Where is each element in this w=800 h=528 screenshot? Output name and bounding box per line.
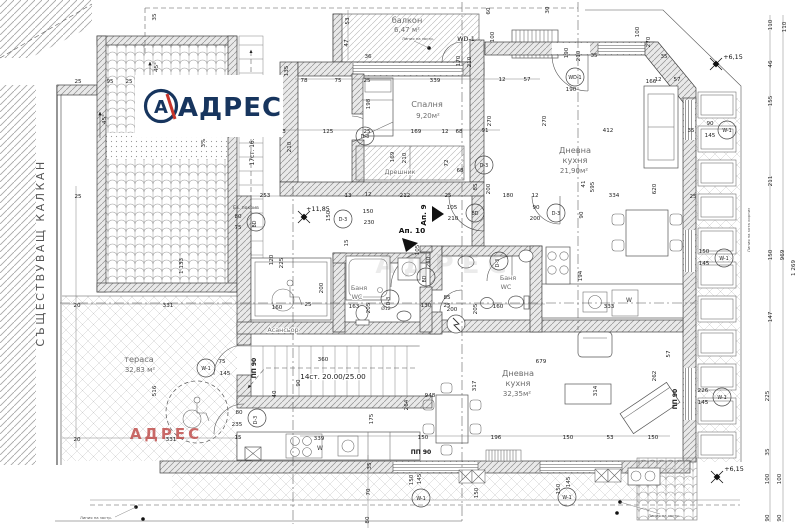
room-name: WC: [501, 283, 512, 291]
dimension-label: 150: [363, 209, 374, 215]
room-name: Дрешник: [384, 168, 415, 176]
room-name: тераса: [124, 354, 154, 364]
dimension-label: 412: [603, 128, 614, 134]
dimension-label: 190: [566, 87, 577, 93]
stairs-label: 14ст. 20.00/25.00: [300, 372, 366, 381]
roof-patch-bottom-right: [637, 458, 697, 520]
dimension-label: 15: [234, 435, 242, 441]
dimension-label: 60: [486, 7, 492, 15]
coffee-table: [565, 384, 611, 404]
tag-label: BD: [422, 275, 428, 282]
dimension-label: 53: [345, 17, 351, 25]
dimension-label: 45°: [102, 114, 108, 124]
dimension-label: 516: [152, 385, 158, 396]
dimension-label: 85: [443, 295, 451, 301]
dimension-label: 75: [234, 225, 242, 231]
dimension-label: 36: [364, 54, 372, 60]
dimension-label: 35: [152, 13, 158, 21]
door-tag-label: WD-1: [457, 35, 475, 43]
dimension-label: 47: [344, 39, 350, 47]
note-label: Линия на застр.: [402, 36, 434, 41]
dimension-label: 68: [456, 168, 464, 174]
dimension-label: 235: [232, 422, 243, 428]
dimension-label: 211: [768, 175, 774, 186]
dimension-label: 53: [606, 435, 614, 441]
dimension-label: 163: [349, 304, 360, 310]
dimension-label: 105: [415, 244, 421, 255]
tag-label: BD: [472, 211, 479, 217]
dimension-label: 270: [542, 115, 548, 126]
dimension-label: 90: [706, 121, 714, 127]
dimension-label: 12: [531, 193, 538, 199]
dimension-label: 40: [272, 390, 278, 398]
dimension-label: 169: [411, 129, 422, 135]
room-area: 21,90м²: [560, 167, 588, 175]
room-area: 6,47 м²: [394, 26, 420, 34]
room-area: 32,83 м²: [125, 366, 156, 374]
dimension-label: 210: [402, 152, 408, 163]
gray-watermark: АДРЕС: [375, 250, 514, 280]
dimension-label: 314: [593, 385, 599, 396]
room-name: балкон: [392, 15, 423, 25]
dimension-label: 15: [344, 239, 350, 247]
dimension-label: 270: [646, 36, 652, 47]
dimension-label: 264: [404, 399, 410, 410]
ac-unit: [628, 468, 660, 485]
dimension-label: 90: [765, 514, 771, 522]
dimension-label: 226: [698, 388, 709, 394]
stairs-14: [237, 346, 420, 396]
dimension-label: 333: [604, 304, 615, 310]
tag-label: D-3: [253, 416, 259, 424]
level-label: +6,15: [723, 53, 743, 61]
dimension-label: 262: [652, 371, 658, 382]
tag-label: BD: [252, 220, 258, 227]
dimension-label: 110: [768, 19, 774, 30]
dimension-label: 125: [323, 129, 334, 135]
tag-label: D-3: [495, 259, 501, 267]
dimension-label: 150: [418, 435, 429, 441]
dimension-label: 25: [125, 79, 133, 85]
dimension-label: 190: [564, 47, 570, 58]
dimension-label: 150: [409, 474, 415, 485]
dimension-label: 331: [163, 303, 174, 309]
dimension-label: 198: [366, 98, 372, 109]
fire-door-label: ПП 90: [672, 389, 679, 409]
dimension-label: 969: [780, 249, 786, 260]
armchair: [578, 332, 612, 357]
dimension-label: 110: [782, 21, 788, 32]
adres-logo: А АДРЕС: [135, 75, 283, 137]
dimension-label: 25: [443, 303, 451, 309]
dimension-label: 3: [282, 129, 286, 135]
apartment-label: Ап. 10: [399, 226, 426, 235]
dimension-label: 210: [467, 56, 473, 67]
room-name: Дневна: [502, 368, 534, 378]
dimension-label: 679: [536, 359, 547, 365]
dimension-label: 100: [777, 473, 783, 484]
dimension-label: 80: [234, 214, 242, 220]
dimension-label: 91: [481, 128, 489, 134]
dimension-label: 210: [576, 50, 582, 61]
appliance-label: W: [317, 445, 323, 452]
dimension-label: 169: [390, 151, 396, 162]
dimension-label: 105: [447, 205, 458, 211]
tag-label: W-1: [719, 256, 728, 262]
dimension-label: 68: [455, 129, 463, 135]
dimension-label: 57: [673, 77, 681, 83]
sofa-lower: [620, 382, 680, 433]
dimension-label: 317: [472, 380, 478, 391]
dimension-label: 25: [304, 302, 312, 308]
dimension-label: 100: [490, 31, 496, 42]
dimension-label: 35: [660, 54, 668, 60]
dimension-label: 20: [73, 303, 81, 309]
dimension-label: 200: [486, 183, 492, 194]
dimension-label: 210: [426, 256, 432, 267]
roof-block: [97, 36, 237, 292]
appliance-label: W: [626, 297, 632, 304]
level-label: +11,85: [306, 205, 330, 213]
dimension-label: 1 133: [179, 258, 185, 274]
room-name: Баня: [500, 274, 516, 282]
dimension-label: 30: [545, 6, 551, 14]
dimension-label: 194: [578, 270, 584, 281]
dimension-label: 41: [581, 180, 587, 188]
apartment-label: Ап. 9: [419, 204, 428, 225]
existing-wall-label: СЪЩЕСТВУВАЩ КАЛКАН: [34, 159, 47, 346]
dimension-label: 205: [473, 303, 479, 314]
dimension-label: 78: [300, 78, 308, 84]
dimension-label: 120: [269, 254, 275, 265]
dimension-label: 145: [705, 133, 716, 139]
dimension-label: 210: [287, 141, 293, 152]
tag-label: W-1: [717, 395, 726, 401]
dimension-label: 150: [563, 435, 574, 441]
room-name: кухня: [563, 155, 588, 165]
tag-label: W-1: [722, 128, 731, 134]
dimension-label: 145: [417, 473, 423, 484]
dimension-label: 595: [590, 181, 596, 192]
dimension-label: 90: [296, 379, 302, 387]
tag-label: D-3: [386, 297, 392, 305]
dimension-label: 166: [646, 79, 657, 85]
dimension-label: 75: [334, 78, 342, 84]
dimension-label: 948: [425, 393, 436, 399]
dimension-label: 225: [279, 257, 285, 268]
dimension-label: 12: [441, 129, 448, 135]
dimension-label: 25: [444, 193, 452, 199]
dimension-label: 80: [365, 516, 371, 524]
adres-logo-brand: АДРЕС: [178, 93, 282, 123]
dimension-label: 45°: [154, 62, 160, 72]
dimension-label: 160: [493, 304, 504, 310]
dimension-label: 160: [272, 305, 283, 311]
dimension-label: 339: [430, 78, 441, 84]
dimension-label: 1 269: [791, 260, 797, 276]
room-name: Спалня: [411, 99, 443, 109]
dimension-label: 35: [765, 448, 771, 456]
dimension-label: 331: [166, 437, 177, 443]
dimension-label: 180: [503, 193, 514, 199]
room-area: 32,35м²: [503, 390, 531, 398]
dimension-label: 200: [530, 216, 541, 222]
dimension-label: 90: [579, 211, 585, 219]
room-name: WC: [352, 293, 363, 301]
dimension-label: 130: [421, 303, 432, 309]
dimension-label: 360: [318, 357, 329, 363]
dimension-label: 90: [777, 514, 783, 522]
dimension-label: 210: [448, 216, 459, 222]
dimension-label: 13: [344, 193, 352, 199]
dimension-label: 35: [687, 128, 695, 134]
dimension-label: 145: [699, 261, 710, 267]
tag-label: D-3: [339, 217, 347, 223]
note-label: Линия на застр.: [648, 513, 680, 518]
tag-label: WD-1: [568, 75, 581, 81]
fire-door-label: ПП 90: [411, 449, 431, 456]
adres-logo-mark: А: [154, 97, 168, 118]
fire-door-label: ПП 90: [251, 358, 258, 378]
dimension-label: 25: [689, 194, 697, 200]
tag-label: D-3: [361, 134, 369, 140]
tag-label: W-1: [201, 366, 210, 372]
dimension-label: 150: [648, 435, 659, 441]
room-name: кухня: [506, 378, 531, 388]
dimension-label: 155: [768, 95, 774, 106]
dimension-label: 57: [666, 350, 672, 358]
dimension-label: 620: [652, 183, 658, 194]
room-area: 9,20м²: [416, 112, 440, 120]
tag-label: D-3: [480, 163, 488, 169]
dimension-label: 46: [768, 60, 774, 68]
dining-table-upper: [612, 210, 682, 256]
floor-plan-svg: АДРЕС А АДРЕС АДРЕС балкон6,47 м²Спалня9…: [0, 0, 800, 528]
dimension-label: 3%: [201, 139, 207, 148]
dimension-label: 75: [218, 359, 226, 365]
dimension-label: 25: [74, 194, 82, 200]
dimension-label: 25: [363, 78, 371, 84]
dimension-label: 175: [369, 413, 375, 424]
dimension-label: 95: [106, 79, 114, 85]
level-label: +6,15: [724, 465, 744, 473]
room-name: Асансьор: [267, 326, 298, 334]
tag-label: W-1: [562, 495, 571, 501]
dimension-label: 225: [765, 390, 771, 401]
note-label: Ев. покрив: [233, 205, 259, 211]
dimension-label: 145: [698, 400, 709, 406]
dimension-label: 150: [699, 249, 710, 255]
dimension-label: 230: [364, 220, 375, 226]
sofa-upper: [644, 86, 678, 168]
dimension-label: 150: [474, 487, 480, 498]
dimension-label: 150: [768, 249, 774, 260]
dimension-label: 72: [444, 159, 450, 166]
dimension-label: 253: [260, 193, 271, 199]
note-label: Линия на кота корниз: [746, 208, 751, 252]
dimension-label: 334: [609, 193, 620, 199]
tag-label: D-3: [552, 211, 560, 217]
dimension-label: 20: [73, 437, 81, 443]
dimension-label: 145: [220, 371, 231, 377]
dimension-label: 90: [532, 205, 540, 211]
tag-label: W-1: [416, 496, 425, 502]
dimension-label: 85: [473, 183, 479, 191]
dimension-label: 70: [366, 488, 372, 496]
dimension-label: 196: [491, 435, 502, 441]
dimension-label: 12: [498, 77, 505, 83]
dimension-label: 80: [235, 410, 243, 416]
room-name: Дневна: [559, 145, 591, 155]
note-label: Линия на застр.: [80, 515, 112, 520]
dimension-label: 205: [366, 302, 372, 313]
dimension-label: 270: [487, 115, 493, 126]
dimension-label: 12: [364, 192, 371, 198]
dimension-label: 35: [590, 53, 598, 59]
dimension-label: 100: [765, 473, 771, 484]
dimension-label: 35: [367, 462, 373, 470]
dimension-label: 25: [74, 79, 82, 85]
dimension-label: 212: [400, 193, 411, 199]
dimension-label: 145: [566, 476, 572, 487]
dimension-label: 147: [768, 311, 774, 322]
dimension-label: 135: [284, 65, 290, 76]
room-name: Баня: [351, 284, 367, 292]
dimension-label: 339: [314, 436, 325, 442]
dimension-label: 200: [319, 282, 325, 293]
dimension-label: 57: [523, 77, 531, 83]
dimension-label: 100: [635, 26, 641, 37]
stairs-label: 17ст. 16.: [250, 138, 256, 165]
floor-plan-canvas: АДРЕС А АДРЕС АДРЕС балкон6,47 м²Спалня9…: [0, 0, 800, 528]
dimension-label: 170: [456, 55, 462, 66]
